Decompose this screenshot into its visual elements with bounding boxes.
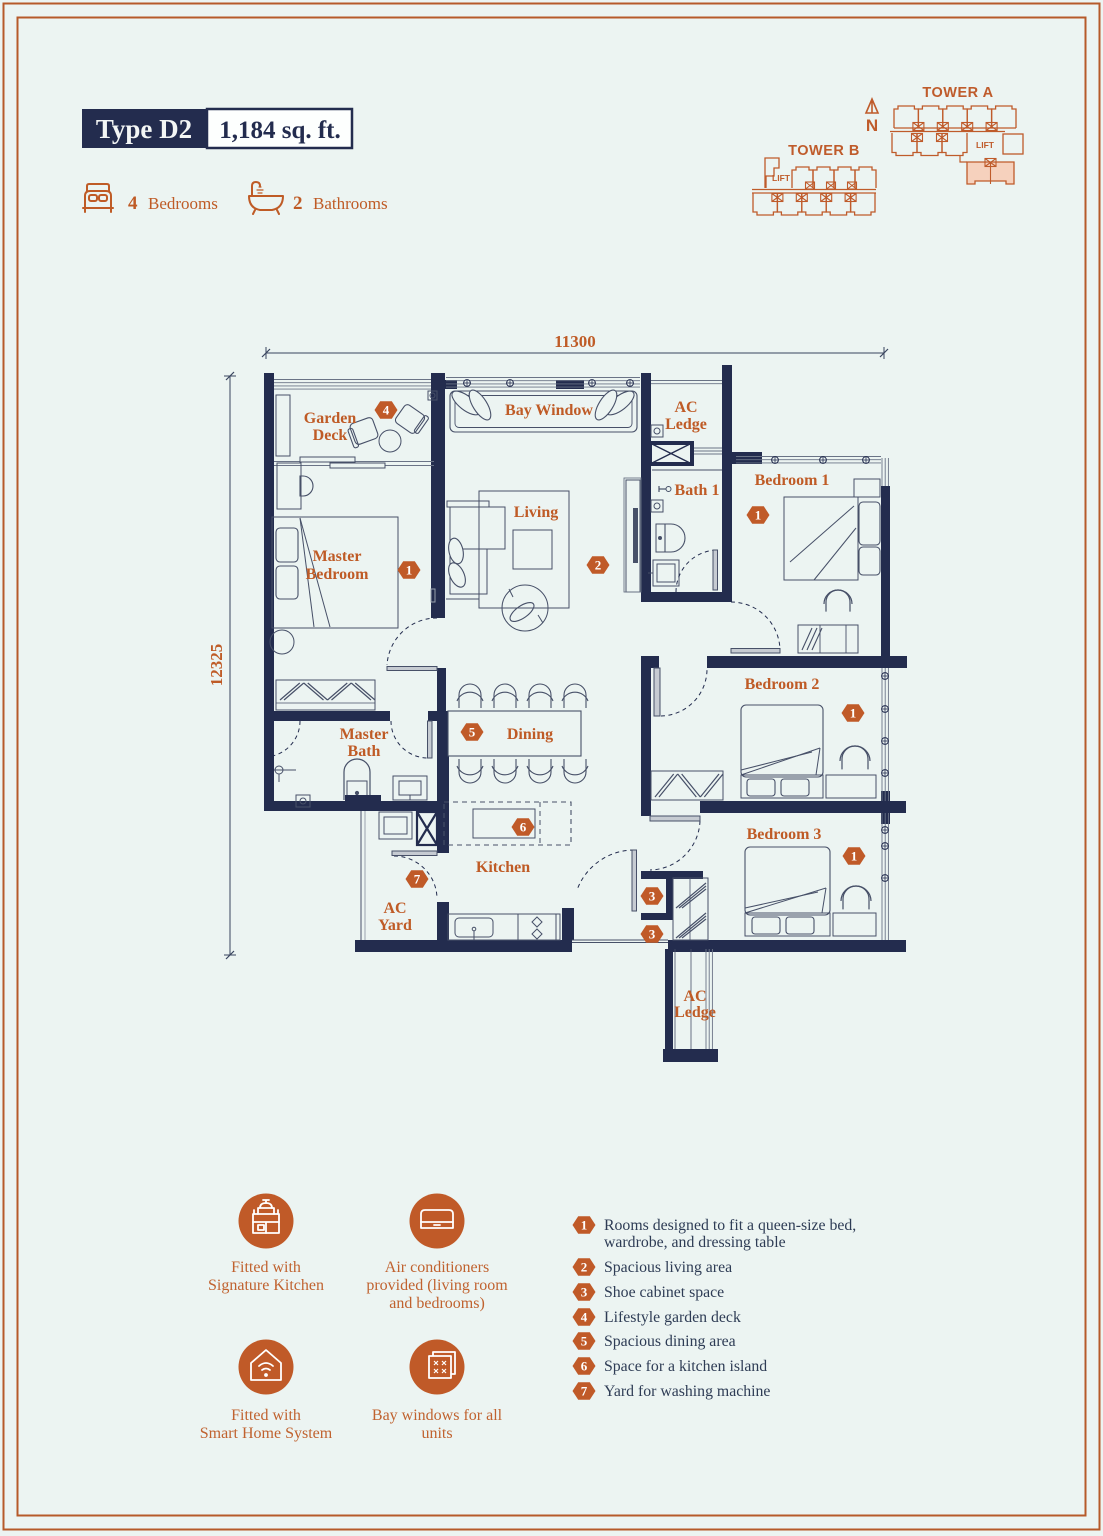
svg-text:Bedroom: Bedroom [306, 566, 369, 583]
svg-text:Living: Living [514, 504, 558, 521]
svg-text:Bath: Bath [348, 743, 381, 760]
svg-text:Signature Kitchen: Signature Kitchen [208, 1277, 324, 1294]
svg-text:Bathrooms: Bathrooms [313, 194, 388, 213]
svg-text:Fitted with: Fitted with [231, 1259, 301, 1276]
svg-text:Bay windows for all: Bay windows for all [372, 1407, 503, 1424]
svg-text:3: 3 [649, 888, 656, 903]
svg-text:4: 4 [128, 193, 138, 214]
svg-text:TOWER B: TOWER B [788, 143, 860, 159]
svg-text:Master: Master [313, 548, 362, 565]
svg-text:Yard for washing machine: Yard for washing machine [604, 1383, 770, 1400]
svg-text:Rooms designed to fit a queen-: Rooms designed to fit a queen-size bed, [604, 1217, 856, 1234]
svg-text:Air conditioners: Air conditioners [385, 1259, 489, 1276]
svg-text:2: 2 [595, 557, 602, 572]
svg-text:Bedroom 2: Bedroom 2 [745, 676, 820, 693]
svg-text:1,184 sq. ft.: 1,184 sq. ft. [219, 117, 341, 144]
svg-text:wardrobe, and dressing table: wardrobe, and dressing table [604, 1234, 786, 1251]
svg-text:6: 6 [581, 1358, 588, 1373]
svg-text:4: 4 [383, 402, 390, 417]
svg-text:Shoe cabinet space: Shoe cabinet space [604, 1284, 724, 1301]
svg-text:7: 7 [414, 871, 421, 886]
svg-text:2: 2 [581, 1259, 588, 1274]
svg-text:AC: AC [383, 900, 406, 917]
svg-text:units: units [421, 1425, 452, 1442]
svg-text:N: N [866, 116, 878, 135]
svg-text:Ledge: Ledge [674, 1004, 716, 1021]
svg-text:Fitted with: Fitted with [231, 1407, 301, 1424]
svg-text:1: 1 [851, 848, 858, 863]
svg-text:Kitchen: Kitchen [476, 859, 530, 876]
svg-text:5: 5 [581, 1333, 588, 1348]
svg-text:and bedrooms): and bedrooms) [389, 1295, 485, 1312]
svg-text:3: 3 [649, 926, 656, 941]
svg-text:Type D2: Type D2 [96, 114, 192, 144]
svg-text:Bedroom 3: Bedroom 3 [747, 826, 822, 843]
svg-text:1: 1 [850, 705, 857, 720]
svg-text:6: 6 [520, 819, 527, 834]
svg-text:11300: 11300 [554, 332, 596, 351]
svg-text:provided (living room: provided (living room [366, 1277, 508, 1294]
svg-text:1: 1 [755, 507, 762, 522]
svg-text:Lifestyle garden deck: Lifestyle garden deck [604, 1309, 741, 1326]
svg-text:Space for a kitchen island: Space for a kitchen island [604, 1358, 767, 1375]
svg-text:Bay Window: Bay Window [505, 402, 593, 419]
svg-text:12325: 12325 [207, 644, 226, 687]
svg-text:LIFT: LIFT [976, 140, 995, 150]
svg-text:1: 1 [581, 1217, 588, 1232]
svg-text:Spacious dining area: Spacious dining area [604, 1333, 736, 1350]
svg-text:7: 7 [581, 1383, 588, 1398]
svg-text:4: 4 [581, 1309, 588, 1324]
svg-text:5: 5 [469, 724, 476, 739]
svg-text:Master: Master [340, 726, 389, 743]
svg-text:1: 1 [406, 562, 413, 577]
svg-text:AC: AC [683, 988, 706, 1005]
svg-text:Spacious living area: Spacious living area [604, 1259, 732, 1276]
svg-text:TOWER A: TOWER A [922, 85, 993, 101]
svg-text:Garden: Garden [304, 410, 357, 427]
svg-text:AC: AC [674, 399, 697, 416]
svg-text:Deck: Deck [313, 427, 348, 444]
svg-text:Bedroom 1: Bedroom 1 [755, 472, 830, 489]
svg-text:Yard: Yard [378, 917, 412, 934]
svg-text:2: 2 [293, 193, 303, 214]
svg-text:Ledge: Ledge [665, 416, 707, 433]
svg-text:Smart Home System: Smart Home System [200, 1425, 333, 1442]
svg-text:Bedrooms: Bedrooms [148, 194, 218, 213]
svg-text:Bath 1: Bath 1 [675, 482, 720, 499]
svg-text:LIFT: LIFT [772, 173, 791, 183]
svg-text:3: 3 [581, 1284, 588, 1299]
svg-text:Dining: Dining [507, 726, 553, 743]
